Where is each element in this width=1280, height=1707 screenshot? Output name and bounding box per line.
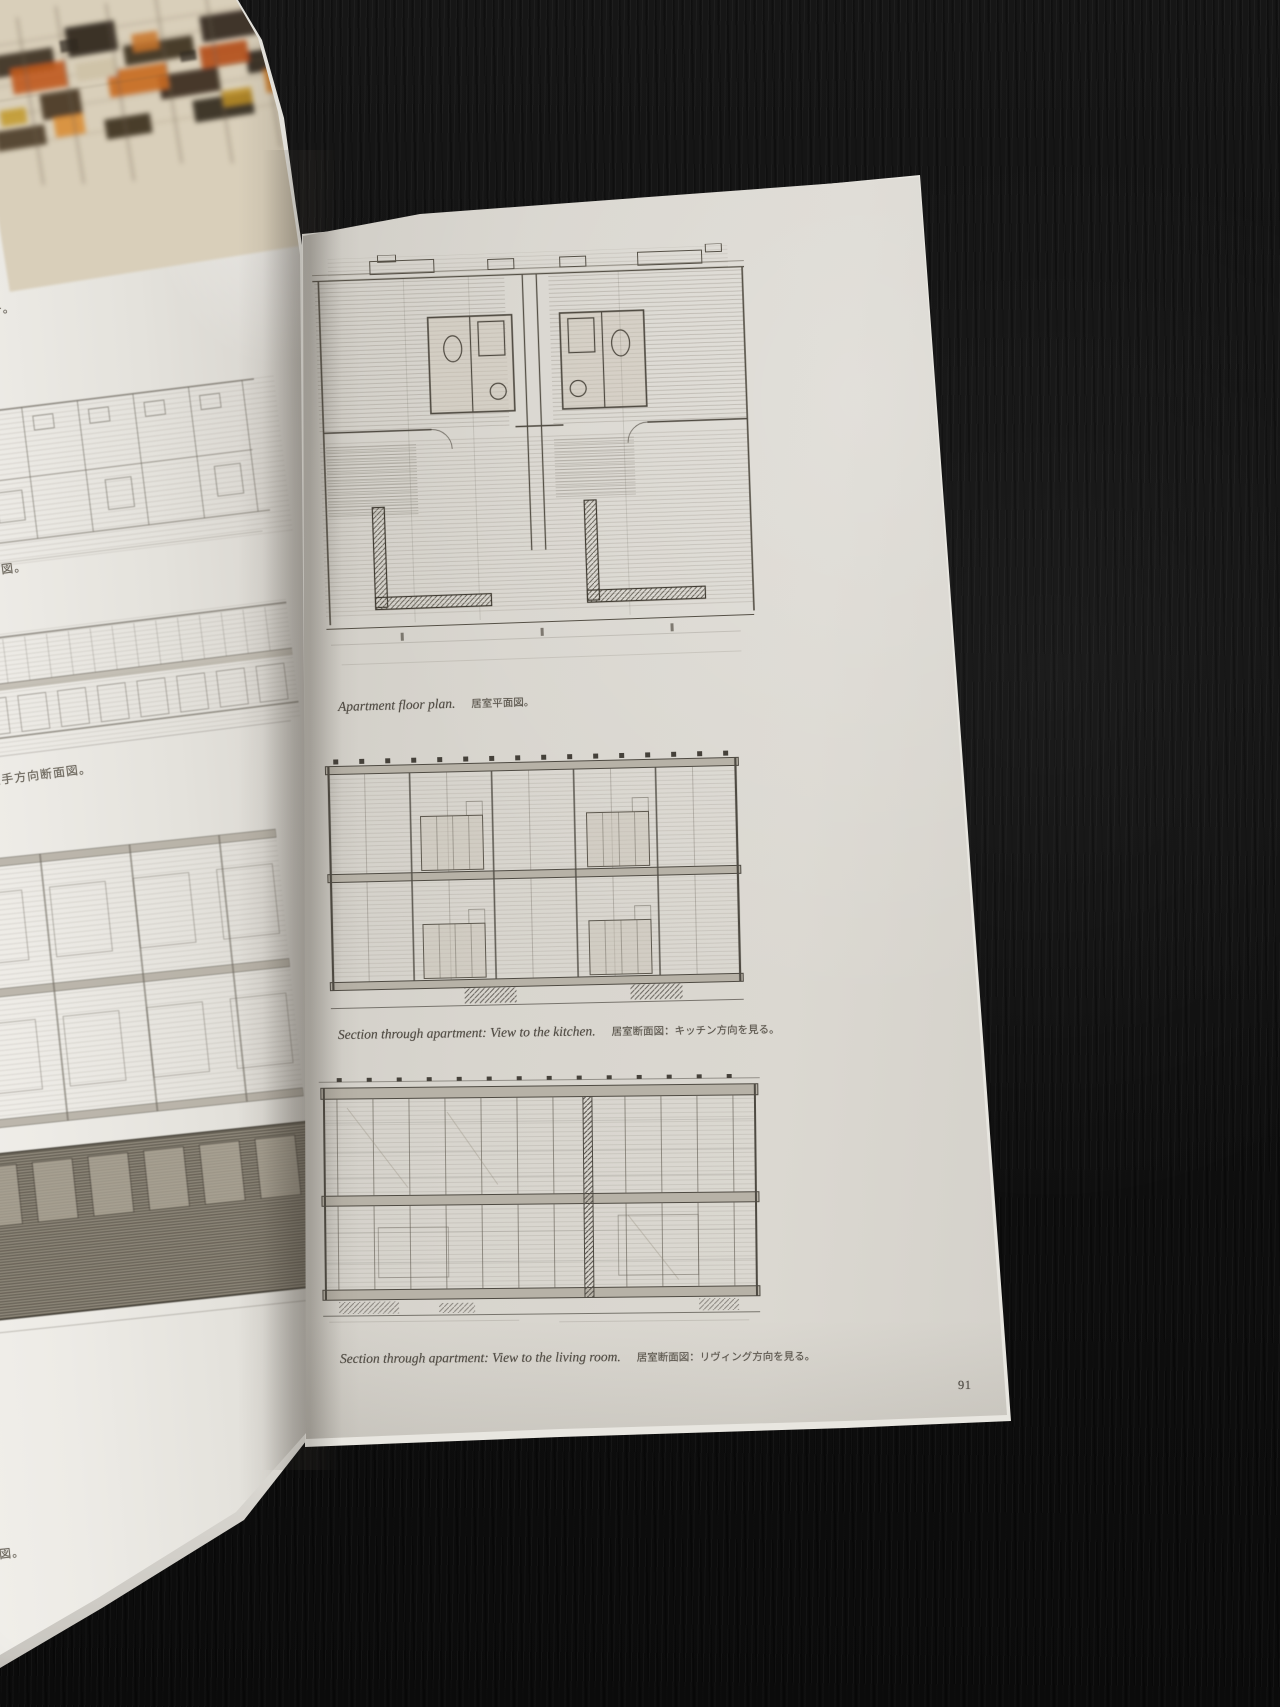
caption-section-kitchen-jp: 居室断面図：キッチン方向を見る。: [611, 1024, 779, 1038]
photo-of-open-book: チ。: [0, 0, 1280, 1707]
apartment-floor-plan-sketch: [307, 242, 762, 697]
caption-section-kitchen-en: Section through apartment: View to the k…: [338, 1023, 596, 1042]
section-sketch-kitchen-view: [319, 747, 750, 1015]
caption-floor-plan-jp: 居室平面図。: [471, 697, 534, 711]
section-sketch-living-room-view: [317, 1074, 765, 1331]
